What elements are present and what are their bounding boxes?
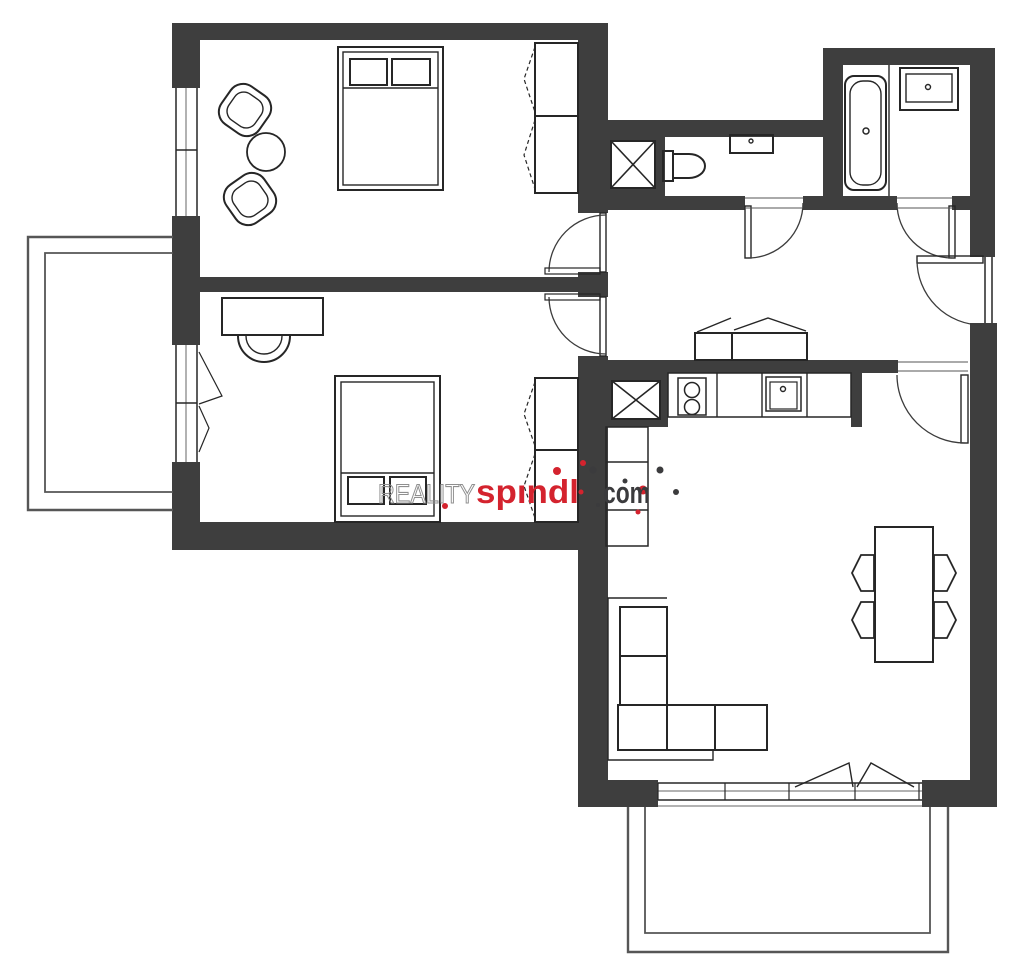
armchair2-outer	[218, 167, 282, 231]
watermark: REALITY spındl com	[378, 473, 650, 510]
wall-left-upper	[172, 40, 200, 88]
hall-closet-flap-b	[734, 318, 806, 331]
wall-hall-top-2	[803, 196, 897, 210]
desk	[222, 298, 323, 335]
hall-closet-b	[732, 333, 807, 360]
bath-sink-faucet-dot	[926, 85, 931, 90]
wall-bottom-left	[578, 780, 658, 807]
window2-opening-tri-b	[199, 406, 209, 452]
armchair1-inner	[223, 88, 268, 133]
living-door-leaf	[961, 375, 968, 443]
wall-kitchen	[608, 360, 898, 373]
dining-chair-right-top	[934, 555, 956, 591]
bed1-outer	[338, 47, 443, 190]
window2-opening-tri-a	[199, 352, 222, 404]
desk-chair-inner	[246, 336, 282, 354]
bathtub-inner	[850, 81, 881, 185]
logo-dot-dark-1	[590, 467, 597, 474]
balcony-bottom-outer	[628, 807, 948, 952]
bath-door-leaf	[949, 206, 955, 258]
hall-closet-flap-a	[697, 318, 731, 332]
wall-bottom-bedroom2	[172, 522, 608, 550]
wall-corridor-mid	[578, 272, 608, 297]
watermark-spindl: spındl	[476, 473, 579, 510]
logo-dot-dark-5	[596, 503, 600, 507]
stove-burner-bottom	[685, 400, 700, 415]
wc-door-arc	[748, 203, 803, 258]
entrance-door-leaf	[917, 256, 983, 263]
wc-door-leaf	[745, 206, 751, 258]
dining-chair-left-top	[852, 555, 874, 591]
side-table-round	[247, 133, 285, 171]
wc-sink-faucet-dot	[749, 139, 753, 143]
bedroom1-door-arc	[549, 215, 606, 272]
wall-divider-bedrooms	[172, 277, 608, 292]
stove-burner-top	[685, 383, 700, 398]
balcony-left-inner	[45, 253, 173, 492]
logo-dot-dark-2	[657, 467, 664, 474]
dining-chair-left-bottom	[852, 602, 874, 638]
wall-bottom-right	[922, 780, 997, 807]
wardrobe1-cell-a	[535, 43, 578, 116]
bedroom1-door-leaf	[600, 213, 606, 272]
logo-dot-dark-3	[673, 489, 679, 495]
balcony-left-outer	[28, 237, 173, 510]
wardrobe2-cell-a	[535, 378, 578, 450]
logo-dot-red-3	[580, 460, 586, 466]
wall-bathroom-top	[823, 48, 995, 65]
wall-right-lower	[970, 323, 997, 780]
bed1-inner	[343, 52, 438, 185]
bath-sink-inner	[906, 74, 952, 102]
kitchen-counter	[668, 373, 851, 417]
logo-dot-red-4	[579, 490, 584, 495]
balcony-bottom-inner	[645, 807, 930, 933]
bathtub-outer	[845, 76, 886, 190]
watermark-com: com	[603, 475, 650, 510]
wardrobe1-swing-b	[524, 120, 535, 189]
wardrobe1-swing-a	[524, 47, 535, 112]
bed1-pillow-right	[392, 59, 430, 85]
bathtub-drain-dot	[863, 128, 869, 134]
dining-table	[875, 527, 933, 662]
wall-bathroom-left	[823, 65, 843, 196]
living-door-arc	[897, 375, 965, 443]
bedroom2-door-arc	[549, 297, 606, 354]
stove	[678, 378, 706, 415]
wall-right-upper	[970, 65, 995, 257]
watermark-reality: REALITY	[378, 479, 475, 509]
sofa-seat-row	[618, 705, 767, 750]
hall-closet-a	[695, 333, 732, 360]
logo-dot-red-6	[636, 510, 641, 515]
sofa-outline	[608, 598, 713, 760]
toilet-bowl	[673, 154, 705, 178]
wardrobe2-swing-a	[524, 382, 535, 446]
floorplan-canvas: REALITY spındl com	[0, 0, 1024, 978]
floorplan-page: REALITY spındl com	[0, 0, 1024, 978]
bedroom2-door-leaf	[600, 297, 606, 356]
entrance-door-arc	[917, 260, 982, 325]
wall-top-bedrooms	[172, 23, 608, 40]
wall-kitchen-stub	[851, 373, 862, 427]
kitchen-sink-faucet-dot	[781, 387, 786, 392]
wc-sink	[730, 135, 773, 153]
dining-chair-right-bottom	[934, 602, 956, 638]
bed1-pillow-left	[350, 59, 387, 85]
wardrobe1-cell-b	[535, 116, 578, 193]
armchair2-inner	[228, 177, 273, 222]
bath-door-arc	[897, 203, 952, 258]
wall-hall-top-1	[608, 196, 745, 210]
